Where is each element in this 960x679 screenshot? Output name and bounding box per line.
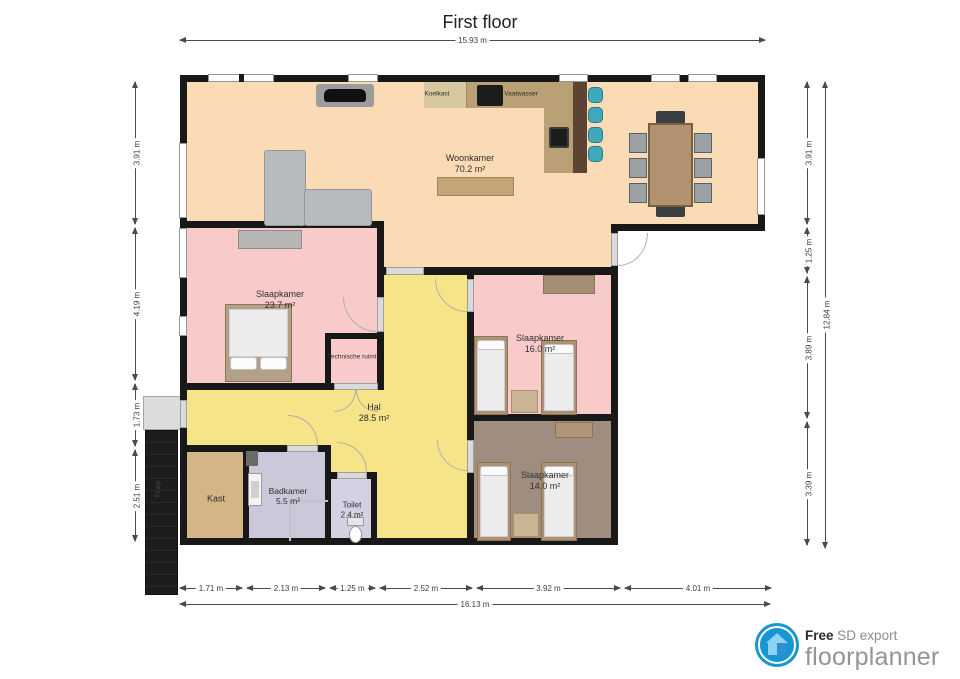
dresser [543, 275, 595, 294]
dimension-left: 3.91 m [135, 82, 136, 224]
dimension-label: 3.92 m [533, 584, 563, 593]
room-area: 5.5 m² [269, 496, 308, 506]
wall-segment [467, 414, 617, 421]
dimension-label: 15.93 m [455, 36, 490, 45]
room-name: Slaapkamer [256, 289, 304, 300]
doorway-slaapkamer-groot [377, 297, 384, 332]
brand-text: Free SD export floorplanner [805, 623, 939, 670]
dimension-bottom: 1.71 m [180, 588, 242, 589]
room-label-hal: Hal 28.5 m² [359, 402, 390, 424]
wall-segment [467, 414, 474, 545]
mattress [229, 309, 288, 357]
mattress [480, 471, 508, 537]
room-label-slaapkamer-midden: Slaapkamer 16.0 m² [516, 333, 564, 355]
room-name: Woonkamer [446, 153, 494, 164]
dimension-label: 4.01 m [683, 584, 713, 593]
bar-stool [588, 107, 603, 123]
dining-table [648, 123, 693, 207]
dimension-right: 3.91 m [807, 82, 808, 224]
doorway-slaapkamer-onder [467, 440, 474, 473]
room-label-kast: Kast [207, 494, 225, 505]
logo-ring [758, 626, 796, 664]
dimension-right: 3.39 m [807, 422, 808, 545]
hal-floor [381, 270, 470, 541]
dimension-bottom: 2.52 m [380, 588, 472, 589]
room-label-woonkamer: Woonkamer 70.2 m² [446, 153, 494, 175]
dimension-label: 3.39 m [805, 468, 814, 498]
dimension-label: 1.73 m [133, 400, 142, 430]
stairs-label: Trap [155, 480, 162, 498]
stair-landing [143, 396, 181, 430]
dishwasher-label: Vaatwasser [504, 91, 537, 98]
dimension-label: 1.25 m [805, 235, 814, 265]
pillow [480, 466, 508, 476]
doorway-slaapkamer-midden [467, 279, 474, 312]
room-label-toilet: Toilet 2.4 m² [341, 500, 364, 519]
pillow [260, 357, 287, 370]
room-area: 70.2 m² [446, 164, 494, 175]
radiator [246, 451, 258, 466]
room-name: Hal [359, 402, 390, 413]
window [179, 143, 187, 218]
window [651, 74, 680, 82]
sd-export-label: SD export [837, 628, 897, 643]
room-label-slaapkamer-groot: Slaapkamer 23.7 m² [256, 289, 304, 311]
wall-segment [325, 333, 384, 339]
fridge-label: Koelkast [425, 91, 450, 98]
floorplan-canvas: First floor Trap [0, 0, 960, 679]
bar-stool [588, 127, 603, 143]
window [179, 228, 187, 278]
doorway-badkamer [287, 445, 318, 452]
nightstand [513, 513, 539, 537]
dimension-label: 1.71 m [196, 584, 226, 593]
mattress [477, 345, 505, 411]
room-area: 28.5 m² [359, 413, 390, 424]
wall-segment [611, 224, 765, 231]
dimension-label: 3.91 m [133, 138, 142, 168]
dimension-left: 1.73 m [135, 384, 136, 446]
pillow [230, 357, 257, 370]
dimension-label: 2.52 m [411, 584, 441, 593]
nightstand [511, 390, 538, 413]
dining-chair [694, 183, 712, 203]
window [688, 74, 717, 82]
doorway-toilet [337, 472, 367, 479]
room-label-badkamer: Badkamer 5.5 m² [269, 486, 308, 506]
window [559, 74, 588, 82]
wall-segment [371, 472, 377, 545]
dimension-label: 3.89 m [805, 332, 814, 362]
sink [549, 127, 569, 148]
doorway-technische-ruimte [334, 383, 378, 390]
room-name: Badkamer [269, 486, 308, 496]
dimension-label: 4.19 m [133, 289, 142, 319]
window [757, 158, 765, 215]
room-area: 14.0 m² [521, 481, 569, 492]
sideboard [437, 177, 514, 196]
mattress [544, 349, 574, 411]
wall-segment [325, 445, 331, 545]
floorplanner-logo-icon [755, 623, 799, 667]
doorway-stairs [180, 400, 187, 428]
door-arc [618, 233, 648, 266]
page-title: First floor [442, 12, 517, 33]
dimension-bottom: 4.01 m [625, 588, 771, 589]
dining-chair [629, 158, 647, 178]
dimension-top-total: 15.93 m [180, 40, 765, 41]
bar-stool [588, 146, 603, 162]
bathroom-sink-basin [251, 481, 259, 498]
room-label-slaapkamer-onder: Slaapkamer 14.0 m² [521, 470, 569, 492]
dimension-label: 12.84 m [823, 298, 832, 333]
room-area: 23.7 m² [256, 300, 304, 311]
dining-chair [629, 183, 647, 203]
wall-segment [325, 333, 331, 390]
cooktop [477, 85, 503, 106]
window [179, 316, 187, 336]
room-name: Slaapkamer [516, 333, 564, 344]
dimension-bottom: 1.25 m [330, 588, 375, 589]
dimension-right: 3.89 m [807, 277, 808, 418]
room-area: 16.0 m² [516, 344, 564, 355]
dimension-bottom: 3.92 m [477, 588, 620, 589]
window-mullion [239, 74, 244, 82]
dimension-label: 16.13 m [458, 600, 493, 609]
dresser [238, 230, 302, 249]
room-name: Slaapkamer [521, 470, 569, 481]
sofa-left-arm [264, 150, 306, 226]
dimension-label: 2.51 m [133, 480, 142, 510]
dining-chair [629, 133, 647, 153]
dresser [555, 422, 593, 438]
dimension-bottom: 2.13 m [247, 588, 325, 589]
bar-stool [588, 87, 603, 103]
dimension-label: 1.25 m [337, 584, 367, 593]
bar-counter [573, 82, 587, 173]
toilet-bowl [349, 526, 362, 543]
brand-name: floorplanner [805, 645, 939, 670]
room-area: 2.4 m² [341, 510, 364, 520]
dining-chair [694, 133, 712, 153]
dimension-right: 1.25 m [807, 228, 808, 273]
dimension-label: 3.91 m [805, 138, 814, 168]
brand-footer: Free SD export floorplanner [755, 623, 939, 670]
tv [324, 89, 366, 102]
room-label-technische-ruimte: Technische ruimte [328, 354, 380, 361]
sofa-seat [304, 189, 372, 226]
doorway-exterior [611, 233, 618, 266]
doorway-woonkamer-hal [386, 267, 424, 275]
window [348, 74, 378, 82]
export-tagline: Free SD export [805, 629, 939, 643]
dimension-right-total: 12.84 m [825, 82, 826, 548]
dimension-bottom-total: 16.13 m [180, 604, 770, 605]
dimension-left: 4.19 m [135, 228, 136, 380]
technische-ruimte-floor [328, 336, 380, 386]
dining-chair [694, 158, 712, 178]
dimension-left: 2.51 m [135, 450, 136, 541]
free-label: Free [805, 628, 834, 643]
dimension-label: 2.13 m [271, 584, 301, 593]
room-name: Toilet [341, 500, 364, 510]
room-name: Kast [207, 494, 225, 505]
staircase [145, 430, 178, 595]
pillow [477, 340, 505, 350]
